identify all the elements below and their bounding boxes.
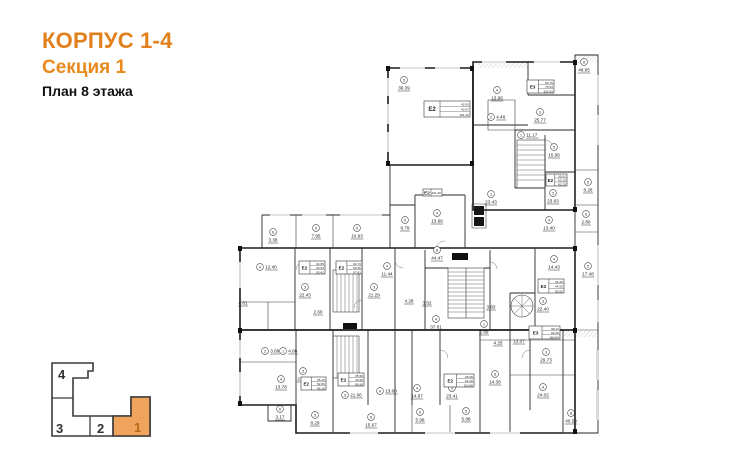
room-area: 3.52	[423, 301, 432, 306]
room-label: 322.40	[537, 298, 550, 312]
room-area: 29.73	[540, 358, 552, 363]
unit-area-row: 96.96	[355, 382, 363, 386]
room-number: 3	[304, 285, 306, 289]
room-number: 4	[386, 264, 388, 268]
room-area: 12.40	[265, 265, 277, 270]
room-area: 25.77	[534, 118, 546, 123]
room-area: 3.17	[276, 415, 285, 420]
room-number: 3	[373, 285, 375, 289]
room-area: 5.98	[416, 418, 425, 423]
room-number: 4	[436, 211, 438, 215]
room-label: 111.17	[518, 132, 539, 139]
room-label: 58.28	[583, 179, 593, 193]
room-label: 57.95	[311, 225, 321, 239]
room-label: 321.29	[368, 284, 381, 298]
unit-area-row: 160.84	[549, 335, 559, 339]
room-label: 24.48	[488, 114, 507, 121]
unit-area-row: 93.15	[558, 183, 566, 187]
room-area: 36.39	[398, 86, 410, 91]
room-label: 414.87	[411, 385, 424, 399]
room-number: 5	[403, 78, 405, 82]
room-area: 3.08	[270, 349, 279, 354]
room-number: 5	[370, 415, 372, 419]
room-number: 4	[496, 88, 498, 92]
room-area: 13.96	[491, 96, 503, 101]
unit-type: Е2	[341, 377, 347, 382]
unit-type: Е2	[302, 265, 308, 270]
room-number: 8	[436, 248, 438, 252]
unit-tag: Е235.9643.9696.96	[338, 373, 364, 386]
room-area: 4.28	[405, 299, 414, 304]
room-area: 14.38	[489, 380, 501, 385]
room-area: 3.38	[269, 238, 278, 243]
room-area: 22.40	[537, 307, 549, 312]
unit-type: Е2	[548, 178, 554, 183]
room-area: 21.66	[350, 393, 362, 398]
room-label: 413.78	[275, 376, 288, 390]
room-label: 63.17	[275, 406, 285, 420]
unit-tag: Е350.7575.93101.63	[527, 80, 554, 93]
room-label: 412.40	[257, 264, 278, 271]
room-number: 4	[416, 386, 418, 390]
room-label: 321.66	[342, 392, 363, 399]
room-area: 21.29	[368, 293, 380, 298]
unit-type: Е2	[339, 265, 345, 270]
room-area: 40.50	[565, 419, 577, 424]
room-number: 3	[539, 110, 541, 114]
room-label: 14.06	[280, 348, 299, 355]
room-label: 63.38	[268, 229, 278, 243]
room-area: 23.63	[547, 199, 559, 204]
room-number: 4	[435, 317, 437, 321]
room-label: 536.39	[398, 77, 411, 91]
room-number: 4	[379, 389, 381, 393]
room-labels-layer: 536.39413.96848.65325.7724.48111.17515.9…	[238, 59, 594, 428]
area-label: 4.25	[493, 341, 503, 346]
door-swings	[296, 140, 553, 358]
room-area: 4.06	[288, 349, 297, 354]
room-number: 3	[552, 191, 554, 195]
unit-tag: Е234.2844.5590.52	[538, 279, 564, 293]
room-number: 1	[490, 192, 492, 196]
unit-area-row: 90.52	[555, 289, 563, 293]
room-label: 325.77	[534, 109, 547, 123]
unit-tag: Е234.7350.3897.83	[336, 261, 362, 274]
room-label: 55.98	[461, 408, 471, 422]
room-number: 4	[280, 377, 282, 381]
keyplan-label-4[interactable]: 4	[58, 367, 66, 382]
unit-area-row: 43.67	[461, 108, 469, 112]
room-number: 3	[545, 350, 547, 354]
room-area: 8.29	[311, 421, 320, 426]
area-label: 3.83	[486, 305, 496, 310]
room-label: 437.81	[430, 316, 443, 330]
room-number: 6	[279, 407, 281, 411]
unit-type: Е2	[303, 381, 309, 386]
room-area: 23.43	[485, 200, 497, 205]
room-number: 1	[282, 349, 284, 353]
unit-tag: Е235.0150.1093.15	[546, 174, 567, 187]
room-label: 413.40	[543, 217, 556, 231]
room-area: 23.41	[446, 394, 458, 399]
room-area: 13.66	[431, 219, 443, 224]
room-number: 5	[553, 145, 555, 149]
room-area: 44.47	[431, 256, 443, 261]
room-label: 411.44	[381, 263, 394, 277]
room-label: 23.08	[262, 348, 281, 355]
room-label: 514.38	[489, 371, 502, 385]
unit-area-row: 93.41	[316, 270, 324, 274]
room-label: 56.79	[400, 217, 410, 231]
room-area: 11.17	[526, 133, 538, 138]
room-area: 2.60	[314, 310, 323, 315]
room-area: 14.43	[548, 265, 560, 270]
unit-tag: Е368.1192.26160.84	[529, 326, 560, 339]
room-number: 5	[587, 264, 589, 268]
unit-type: Е2	[424, 190, 430, 195]
room-label: 322.43	[299, 284, 312, 298]
room-label: 323.63	[547, 190, 560, 204]
room-label: 329.73	[540, 349, 553, 363]
room-area: 37.81	[430, 325, 442, 330]
room-area: 10.93	[351, 234, 363, 239]
room-number: 8	[583, 60, 585, 64]
unit-tag: Е242.0043.67101.40	[424, 101, 470, 117]
room-label: 123.43	[485, 191, 498, 205]
room-area: 8.28	[584, 188, 593, 193]
room-area: 15.67	[365, 423, 377, 428]
room-number: 5	[494, 372, 496, 376]
area-label: 2.60	[313, 310, 323, 315]
area-label: 4.28	[404, 299, 414, 304]
unit-tag: Е235.1552.8695.10	[301, 377, 326, 390]
title-block: КОРПУС 1-4 Секция 1 План 8 этажа	[42, 28, 173, 99]
room-number: 6	[585, 212, 587, 216]
room-label: 413.96	[491, 87, 504, 101]
unit-tag: Е2101.40	[423, 189, 442, 196]
unit-area-row: 101.40	[459, 113, 469, 117]
room-number: 5	[356, 226, 358, 230]
room-number: 6	[272, 230, 274, 234]
room-area: 2.80	[582, 220, 591, 225]
room-number: 1	[520, 133, 522, 137]
unit-area-row: 44.55	[555, 285, 563, 289]
room-label: 515.67	[365, 414, 378, 428]
unit-type: Е2	[541, 284, 547, 289]
unit-type: Е2	[428, 107, 436, 113]
room-area: 13.78	[275, 385, 287, 390]
room-number: 3	[302, 369, 304, 373]
room-area: 48.65	[578, 68, 590, 73]
room-number: 4	[259, 265, 261, 269]
unit-area-row: 101.40	[431, 191, 441, 195]
room-label: 58.29	[310, 412, 320, 426]
room-label: 424.02	[537, 384, 550, 398]
room-area: 13.07	[513, 339, 525, 344]
keyplan-label-2[interactable]: 2	[97, 421, 104, 436]
room-area: 4.61	[239, 301, 248, 306]
room-number: 2	[264, 349, 266, 353]
room-area: 11.44	[381, 272, 393, 277]
unit-type: Е2	[447, 378, 453, 383]
unit-tags-layer: Е242.0043.67101.40Е350.7575.93101.63Е235…	[299, 80, 567, 390]
room-label: 515.96	[548, 144, 561, 158]
room-number: 8	[570, 411, 572, 415]
room-label: 414.43	[548, 256, 561, 270]
unit-type: Е3	[533, 330, 539, 335]
room-label: 510.93	[351, 225, 364, 239]
room-label: 62.80	[581, 211, 591, 225]
room-number: 3	[344, 393, 346, 397]
room-area: 17.48	[582, 272, 594, 277]
room-number: 5	[315, 226, 317, 230]
section-title: Секция 1	[42, 57, 173, 79]
room-label: 65.98	[415, 409, 425, 423]
room-number: 5	[587, 180, 589, 184]
room-number: 1	[483, 322, 485, 326]
unit-tag: Е234.6543.9493.41	[299, 261, 325, 274]
floor-plan-page: { "title": { "building": "КОРПУС 1-4", "…	[0, 0, 740, 472]
room-number: 6	[419, 410, 421, 414]
room-area: 4.48	[496, 115, 505, 120]
unit-area-row: 101.63	[543, 89, 553, 93]
room-area: 13.60	[385, 389, 397, 394]
unit-area-row: 97.83	[353, 270, 361, 274]
room-number: 5	[465, 409, 467, 413]
room-label: 413.60	[377, 388, 398, 395]
keyplan-label-1[interactable]: 1	[134, 420, 141, 435]
room-number: 4	[548, 218, 550, 222]
room-area: 13.40	[543, 226, 555, 231]
room-area: 5.98	[462, 417, 471, 422]
room-number: 5	[404, 218, 406, 222]
room-area: 15.96	[548, 153, 560, 158]
floor-plan-drawing: 536.39413.96848.65325.7724.48111.17515.9…	[236, 48, 604, 440]
room-area: 7.95	[312, 234, 321, 239]
outer-walls	[240, 55, 598, 433]
room-area: 22.43	[299, 293, 311, 298]
keyplan: 4 3 2 1	[44, 356, 160, 446]
room-area: 3.83	[487, 305, 496, 310]
floor-title: План 8 этажа	[42, 83, 173, 99]
building-title: КОРПУС 1-4	[42, 28, 173, 53]
room-area: 24.02	[537, 393, 549, 398]
room-area: 6.79	[401, 226, 410, 231]
room-number: 2	[490, 115, 492, 119]
room-area: 4.25	[494, 341, 503, 346]
unit-area-row: 110.66	[464, 383, 474, 387]
unit-tag: Е228.2661.26110.66	[444, 374, 474, 387]
keyplan-label-3[interactable]: 3	[56, 421, 63, 436]
unit-area-row: 34.28	[555, 280, 563, 284]
room-number: 4	[553, 257, 555, 261]
room-number: 3	[542, 299, 544, 303]
stair-level-badge	[452, 253, 468, 260]
room-number: 4	[542, 385, 544, 389]
elevator-shafts	[474, 206, 484, 226]
columns	[238, 60, 577, 434]
stair-level-badge	[343, 323, 357, 329]
area-label: 4.61	[238, 301, 248, 306]
area-label: 13.07	[513, 339, 526, 344]
unit-area-row: 95.10	[317, 386, 325, 390]
room-label: 413.66	[431, 210, 444, 224]
room-label: 12.89	[479, 321, 489, 335]
room-area: 14.87	[411, 394, 423, 399]
unit-type: Е3	[530, 84, 536, 89]
keyplan-section-1[interactable]	[113, 397, 150, 436]
room-label: 517.48	[582, 263, 595, 277]
unit-area-row: 42.00	[461, 102, 469, 106]
room-number: 5	[314, 413, 316, 417]
room-area: 2.89	[480, 330, 489, 335]
area-label: 3.52	[422, 301, 432, 306]
